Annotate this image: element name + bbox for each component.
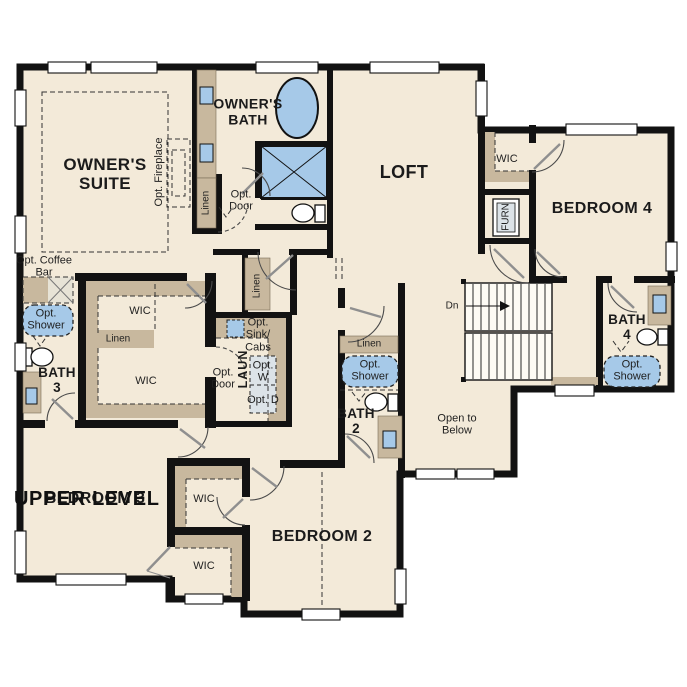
wic-shelf — [175, 535, 242, 548]
opt-fireplace-label: Opt. Fireplace — [153, 137, 165, 206]
window — [185, 594, 223, 604]
window — [91, 62, 157, 73]
staircase — [465, 283, 552, 380]
floor-plan-drawing — [0, 0, 687, 687]
wall — [289, 249, 333, 255]
opt-shower-label: Opt. Shower — [605, 359, 659, 384]
wall — [167, 458, 250, 466]
wall — [167, 577, 175, 599]
sink — [383, 431, 396, 448]
wall — [529, 170, 536, 283]
wic-shelf — [86, 281, 205, 296]
stairs-down-label: Dn — [446, 300, 459, 311]
bedroom2-label: BEDROOM 2 — [272, 528, 373, 546]
wall — [596, 276, 603, 389]
stair-flight-lower — [465, 333, 552, 380]
wic-label: WIC — [193, 560, 214, 572]
window — [302, 609, 340, 620]
window — [256, 62, 318, 73]
opt-dryer-label: Opt. D — [247, 394, 279, 406]
wic-label: WIC — [135, 375, 156, 387]
window — [476, 81, 487, 116]
wic-label: WIC — [193, 493, 214, 505]
floor-plan: OWNER'S SUITE Opt. Fireplace OWNER'S BAT… — [0, 0, 687, 687]
linen-label: Linen — [106, 333, 130, 344]
opt-door-label: Opt. Door — [220, 189, 262, 214]
sink — [200, 144, 213, 162]
window — [15, 531, 26, 574]
opt-door-label: Opt. Door — [202, 367, 244, 392]
wall — [338, 288, 345, 308]
open-to-below-label: Open to Below — [434, 413, 480, 438]
window-sill — [551, 377, 598, 385]
wall — [205, 273, 216, 347]
wall — [242, 535, 250, 601]
wall — [205, 421, 292, 427]
wall — [280, 460, 345, 468]
wall — [20, 420, 45, 428]
window — [56, 574, 126, 585]
opt-sink-cabs-label: Opt. Sink/ Cabs — [238, 317, 278, 354]
window — [48, 62, 86, 73]
owners-suite-label: OWNER'S SUITE — [49, 155, 161, 193]
wall — [255, 224, 333, 230]
sink — [26, 388, 37, 404]
window — [666, 242, 677, 271]
wall — [167, 527, 250, 535]
owners-bath-label: OWNER'S BATH — [201, 96, 296, 127]
bath4-label: BATH 4 — [606, 312, 648, 342]
wall — [529, 125, 536, 143]
wall — [634, 276, 675, 283]
sink — [653, 295, 666, 313]
window — [370, 62, 439, 73]
opt-shower-label: Opt. Shower — [343, 359, 397, 384]
wic-shelf — [485, 171, 529, 182]
linen-label: Linen — [357, 338, 381, 349]
window — [457, 469, 494, 479]
wall — [480, 189, 536, 195]
furnace-label: FURN — [500, 203, 511, 231]
wic-shelf — [175, 466, 242, 479]
toilet-bath3 — [24, 348, 53, 366]
wic-label: WIC — [129, 305, 150, 317]
window — [395, 569, 406, 604]
toilet-owners-bath — [292, 204, 325, 222]
bedroom4-label: BEDROOM 4 — [552, 200, 653, 218]
wic-shelf — [175, 479, 186, 527]
opt-shower-label: Opt. Shower — [19, 308, 73, 333]
window — [416, 469, 455, 479]
wall — [478, 238, 536, 244]
opt-washer-label: Opt. W — [247, 360, 279, 385]
wic-shelf — [231, 548, 242, 597]
window — [566, 124, 637, 135]
wall — [286, 312, 292, 427]
window — [15, 343, 26, 371]
wall — [75, 420, 178, 428]
wall — [78, 273, 86, 428]
wic-shelf — [86, 296, 98, 334]
bath2-label: BATH 2 — [336, 406, 376, 436]
wic-shelf — [86, 348, 98, 404]
window — [555, 385, 594, 396]
wall — [213, 249, 260, 255]
wall — [75, 273, 187, 281]
opt-coffee-bar-label: Opt. Coffee Bar — [7, 255, 81, 280]
bath3-label: BATH 3 — [37, 365, 77, 395]
wic-shelf — [86, 404, 205, 418]
loft-label: LOFT — [380, 162, 429, 182]
window — [15, 216, 26, 253]
window — [15, 90, 26, 126]
wic-label: WIC — [496, 153, 517, 165]
wall — [290, 255, 297, 315]
linen-label: Linen — [200, 191, 211, 215]
wall — [242, 458, 250, 497]
stair-flight-upper — [465, 283, 552, 331]
plan-title: UPPER LEVEL — [14, 488, 160, 511]
linen-label: Linen — [251, 274, 262, 298]
